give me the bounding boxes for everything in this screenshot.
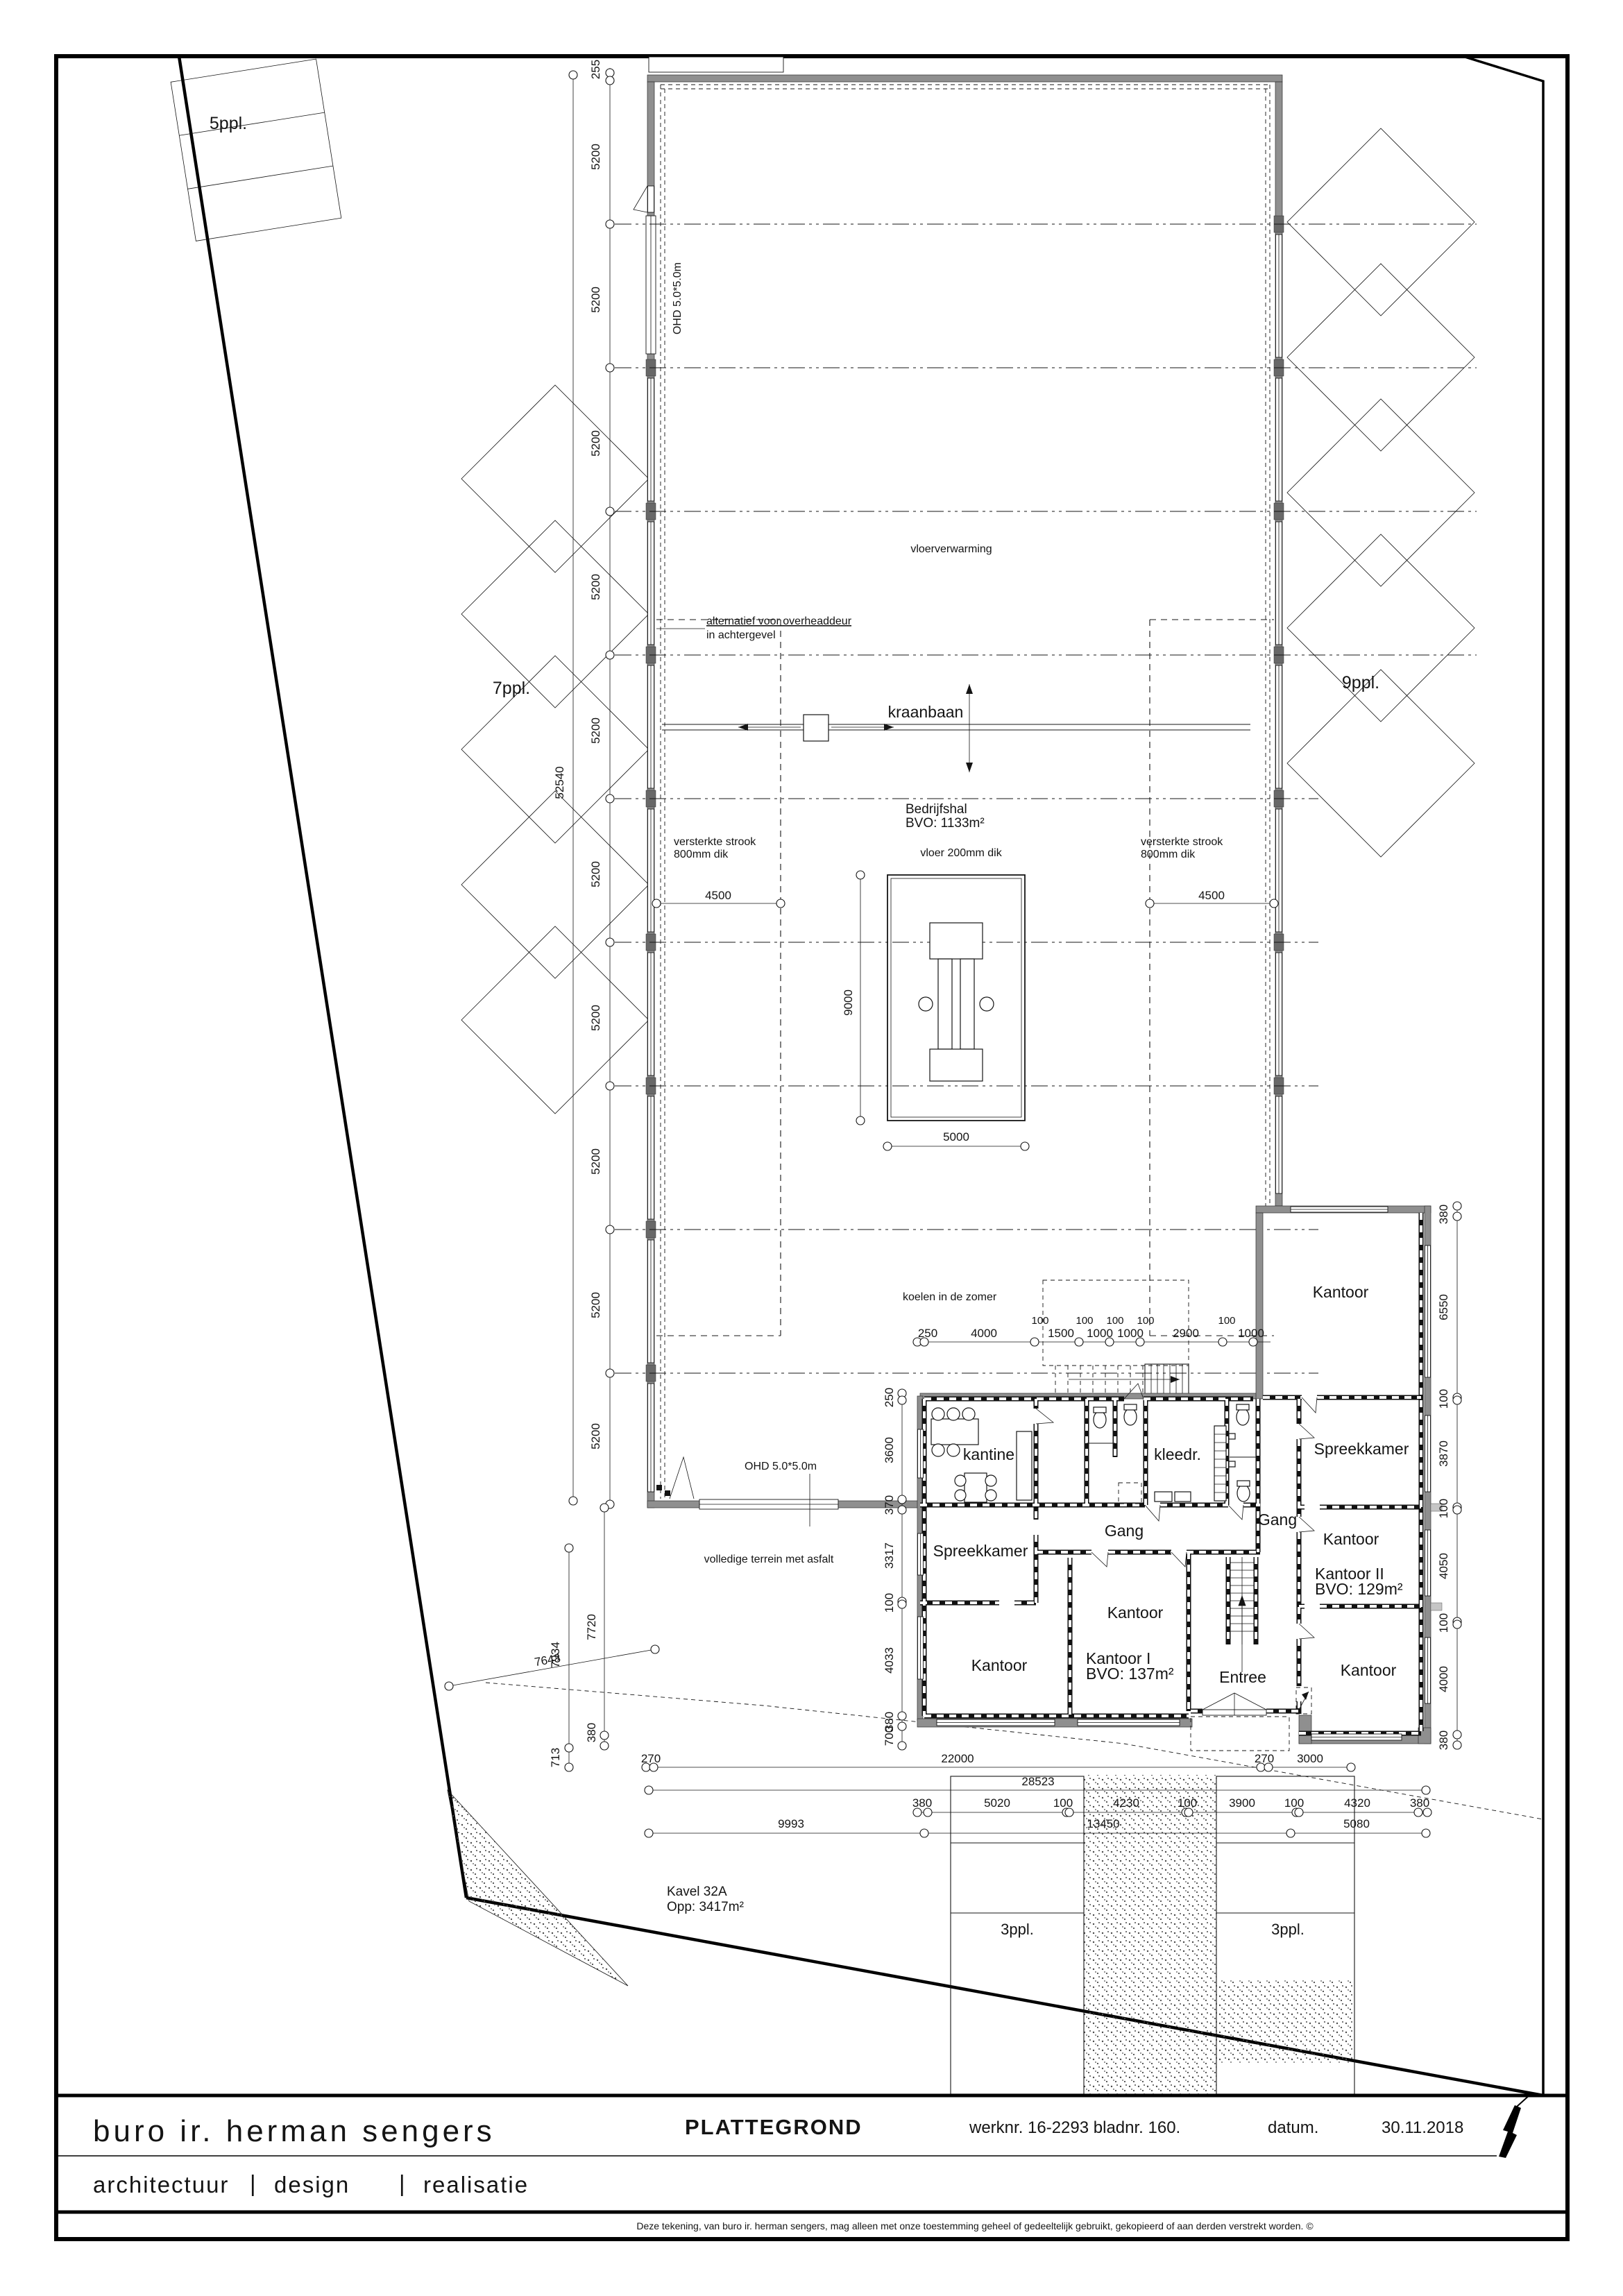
room-kantoor-sw: Kantoor — [971, 1656, 1028, 1674]
drawing-sheet: 5ppl. 7ppl. 9ppl. — [0, 0, 1623, 2296]
driveway-stipple-2 — [1216, 1980, 1353, 2063]
entrance-door — [1191, 1693, 1289, 1751]
crane-trolley — [804, 715, 829, 741]
svg-text:4230: 4230 — [1113, 1796, 1139, 1810]
washbasin — [1155, 1492, 1172, 1502]
svg-text:4000: 4000 — [1437, 1666, 1450, 1692]
kavel-opp: Opp: 3417m² — [667, 1900, 744, 1914]
svg-text:9993: 9993 — [778, 1817, 804, 1830]
svg-text:250: 250 — [918, 1327, 937, 1340]
svg-text:380: 380 — [912, 1796, 932, 1810]
asphalt-note: volledige terrein met asfalt — [704, 1554, 834, 1565]
ohd-door-label-south: OHD 5.0*5.0m — [745, 1461, 817, 1472]
svg-text:1500: 1500 — [1048, 1327, 1074, 1340]
svg-text:380: 380 — [1437, 1730, 1450, 1750]
ohd-door-label-west: OHD 5.0*5.0m — [672, 262, 683, 334]
svg-text:5200: 5200 — [589, 1005, 602, 1031]
parking-7ppl: 7ppl. — [461, 385, 649, 1114]
dim-right-chain: 380 6550 100 3870 100 4050 100 4000 380 — [1437, 1202, 1461, 1750]
unit-kantoor1-bvo: BVO: 137m² — [1086, 1665, 1174, 1683]
hall-north-wall — [647, 75, 1282, 82]
svg-text:5200: 5200 — [589, 1292, 602, 1318]
svg-text:100: 100 — [1437, 1389, 1450, 1409]
porch-outline — [1191, 1717, 1289, 1751]
tagline-realisatie: realisatie — [423, 2172, 529, 2197]
datum-label: datum. — [1268, 2118, 1318, 2137]
alt-overheaddeur-position — [649, 57, 783, 72]
room-entree: Entree — [1219, 1668, 1266, 1686]
lightning-logo — [1499, 2094, 1531, 2158]
svg-text:100: 100 — [1437, 1499, 1450, 1518]
room-kantoor-ne: Kantoor — [1313, 1283, 1369, 1301]
svg-text:5200: 5200 — [589, 1148, 602, 1175]
svg-text:100: 100 — [1218, 1315, 1235, 1327]
stairs-entree — [1230, 1557, 1254, 1672]
hall-bvo: BVO: 1133m² — [906, 816, 985, 831]
washbasin — [1175, 1492, 1191, 1502]
kantine-counter — [1017, 1431, 1032, 1500]
door-swing — [634, 186, 647, 212]
crane-label: kraanbaan — [888, 703, 964, 721]
unit-kantoor2-bvo: BVO: 129m² — [1315, 1580, 1403, 1598]
svg-text:5200: 5200 — [589, 861, 602, 887]
svg-text:700: 700 — [883, 1726, 896, 1746]
svg-text:100: 100 — [1053, 1796, 1073, 1810]
svg-text:370: 370 — [883, 1495, 896, 1515]
room-kleedr: kleedr. — [1154, 1445, 1201, 1463]
tagline-sep-1: | — [250, 2170, 257, 2196]
room-spreekkamer-right: Spreekkamer — [1314, 1440, 1409, 1458]
svg-text:100: 100 — [1178, 1796, 1197, 1810]
kavel-dashed-line — [486, 1683, 1543, 1819]
svg-text:380: 380 — [1437, 1205, 1450, 1224]
svg-text:4000: 4000 — [971, 1327, 997, 1340]
shower — [1119, 1483, 1141, 1504]
werknr: werknr. 16-2293 bladnr. 160. — [969, 2118, 1180, 2137]
title-block: buro ir. herman sengers PLATTEGROND werk… — [56, 2094, 1567, 2231]
dim-left-chain: 255 5200 5200 5200 5200 5200 5200 5200 5… — [553, 60, 614, 1508]
floor-heating-note: vloerverwarming — [910, 543, 992, 555]
urinal — [1229, 1461, 1235, 1467]
hall-name: Bedrijfshal — [906, 802, 967, 817]
brand-name: buro ir. herman sengers — [93, 2114, 495, 2148]
parking-3ppl-left: 3ppl. — [951, 1776, 1084, 2094]
svg-text:3ppl.: 3ppl. — [1001, 1921, 1034, 1938]
strip-note-right-2: 800mm dik — [1141, 849, 1196, 860]
svg-text:5200: 5200 — [589, 574, 602, 600]
room-kantoor-e: Kantoor — [1323, 1530, 1379, 1548]
dim-total-left: 52540 — [553, 766, 566, 799]
machine-pit — [887, 875, 1025, 1121]
canopy-stub — [1431, 1603, 1442, 1610]
doc-type: PLATTEGROND — [685, 2115, 863, 2139]
gravel-triangle — [448, 1790, 628, 1986]
svg-text:4050: 4050 — [1437, 1553, 1450, 1579]
strip-note-right-1: versterkte strook — [1141, 836, 1223, 848]
svg-text:100: 100 — [883, 1593, 896, 1613]
page-border — [56, 56, 1567, 2239]
dim-bottom-chains: 270 22000 270 3000 28523 380 5020 100 42… — [641, 1752, 1431, 1837]
svg-text:3870: 3870 — [1437, 1440, 1450, 1467]
svg-text:22000: 22000 — [941, 1752, 974, 1765]
svg-text:3600: 3600 — [883, 1437, 896, 1463]
svg-text:713: 713 — [549, 1748, 562, 1767]
urinal — [1229, 1434, 1235, 1439]
floor-plan-drawing: 5ppl. 7ppl. 9ppl. — [0, 0, 1623, 2296]
kavel-label: Kavel 32A — [667, 1885, 727, 1899]
grid-lines — [615, 224, 1477, 1373]
cooling-note: koelen in de zomer — [903, 1291, 997, 1303]
svg-text:5200: 5200 — [589, 717, 602, 744]
strip-note-left-2: 800mm dik — [674, 849, 729, 860]
svg-text:4033: 4033 — [883, 1647, 896, 1674]
svg-text:1000: 1000 — [1087, 1327, 1113, 1340]
svg-text:100: 100 — [1106, 1315, 1123, 1327]
tagline-design: design — [274, 2172, 350, 2197]
svg-text:5200: 5200 — [589, 287, 602, 313]
parking-7ppl-label: 7ppl. — [493, 679, 530, 698]
svg-text:7720: 7720 — [585, 1614, 598, 1640]
svg-text:270: 270 — [1255, 1752, 1274, 1765]
svg-text:380: 380 — [1410, 1796, 1429, 1810]
svg-text:100: 100 — [1284, 1796, 1304, 1810]
svg-text:4320: 4320 — [1344, 1796, 1370, 1810]
svg-text:4500: 4500 — [1198, 889, 1225, 902]
svg-text:100: 100 — [1076, 1315, 1093, 1327]
site-boundary — [179, 56, 1543, 2095]
svg-text:1000: 1000 — [1117, 1327, 1144, 1340]
svg-text:3900: 3900 — [1229, 1796, 1255, 1810]
datum-value: 30.11.2018 — [1382, 2118, 1463, 2137]
parking-5ppl: 5ppl. — [171, 59, 341, 241]
svg-text:100: 100 — [1137, 1315, 1154, 1327]
svg-text:5080: 5080 — [1343, 1817, 1370, 1830]
tagline-architectuur: architectuur — [93, 2172, 229, 2197]
svg-text:13450: 13450 — [1087, 1817, 1119, 1830]
svg-text:9000: 9000 — [842, 989, 855, 1016]
svg-text:380: 380 — [585, 1723, 598, 1742]
svg-text:4500: 4500 — [705, 889, 731, 902]
parking-9ppl-label: 9ppl. — [1342, 673, 1379, 692]
dim-28523: 28523 — [1021, 1775, 1054, 1788]
svg-text:5200: 5200 — [589, 1423, 602, 1449]
bottom-site-area: 3ppl. 3ppl. Kavel 32A Opp: 3417m² — [448, 1775, 1354, 2094]
svg-text:5000: 5000 — [943, 1130, 969, 1143]
floor-note: vloer 200mm dik — [920, 847, 1002, 859]
room-kantoor-se: Kantoor — [1341, 1661, 1397, 1679]
svg-text:2900: 2900 — [1173, 1327, 1199, 1340]
dim-top-office-chain: 100 100 100 100 100 250 4000 1500 1000 1… — [913, 1315, 1271, 1346]
room-kantine: kantine — [963, 1445, 1014, 1463]
parking-9ppl: 9ppl. — [1287, 128, 1475, 857]
room-kantoor-center: Kantoor — [1107, 1604, 1164, 1622]
room-gang-v: Gang — [1258, 1511, 1297, 1529]
svg-text:5020: 5020 — [984, 1796, 1010, 1810]
tagline-sep-2: | — [399, 2170, 407, 2196]
office-block: kantine kleedr. Gang Gang Spreekkamer Ka… — [917, 1206, 1442, 1751]
alt-door-note-1: alternatief voor overheaddeur — [706, 615, 852, 627]
hall-east-windows — [1276, 235, 1282, 1193]
svg-text:100: 100 — [1437, 1613, 1450, 1633]
hall-bedrijfshal: vloerverwarming kraanbaan Bedrijfshal BV… — [615, 57, 1477, 1527]
room-spreekkamer-left: Spreekkamer — [933, 1542, 1028, 1560]
lockers — [1214, 1426, 1226, 1501]
svg-text:3000: 3000 — [1297, 1752, 1323, 1765]
svg-text:5200: 5200 — [589, 430, 602, 457]
svg-text:270: 270 — [641, 1752, 661, 1765]
svg-text:3ppl.: 3ppl. — [1271, 1921, 1305, 1938]
svg-text:6550: 6550 — [1437, 1294, 1450, 1320]
svg-text:1000: 1000 — [1238, 1327, 1264, 1340]
dim-255: 255 — [589, 60, 602, 79]
svg-text:5200: 5200 — [589, 144, 602, 170]
room-gang-h: Gang — [1105, 1522, 1144, 1540]
crane-track — [662, 684, 1250, 772]
strip-note-left-1: versterkte strook — [674, 836, 756, 848]
parking-5ppl-label: 5ppl. — [210, 114, 247, 133]
svg-text:3317: 3317 — [883, 1542, 896, 1569]
disclaimer: Deze tekening, van buro ir. herman senge… — [636, 2220, 1314, 2231]
alt-door-note-2: in achtergevel — [706, 629, 776, 641]
svg-text:100: 100 — [1031, 1315, 1048, 1327]
dim-left-office-chain: 250 3600 370 3317 100 4033 380 700 7934 … — [445, 1388, 906, 1771]
svg-text:250: 250 — [883, 1388, 896, 1407]
